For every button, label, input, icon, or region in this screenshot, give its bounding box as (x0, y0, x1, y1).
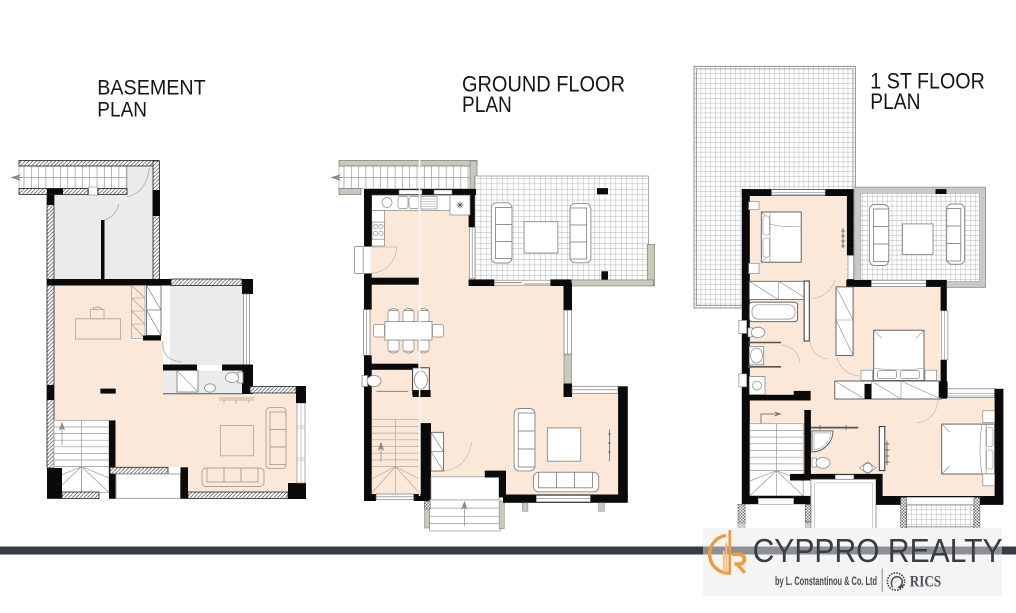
svg-text:CYPPRO REALTY: CYPPRO REALTY (753, 532, 1003, 569)
svg-text:PLAN: PLAN (462, 92, 512, 117)
svg-text:BASEMENT: BASEMENT (97, 76, 205, 100)
svg-text:RICS: RICS (910, 574, 942, 591)
svg-text:PLAN: PLAN (97, 97, 147, 121)
svg-text:PLAN: PLAN (870, 89, 920, 114)
svg-text:by L. Constantinou & Co. Ltd: by L. Constantinou & Co. Ltd (775, 574, 877, 588)
